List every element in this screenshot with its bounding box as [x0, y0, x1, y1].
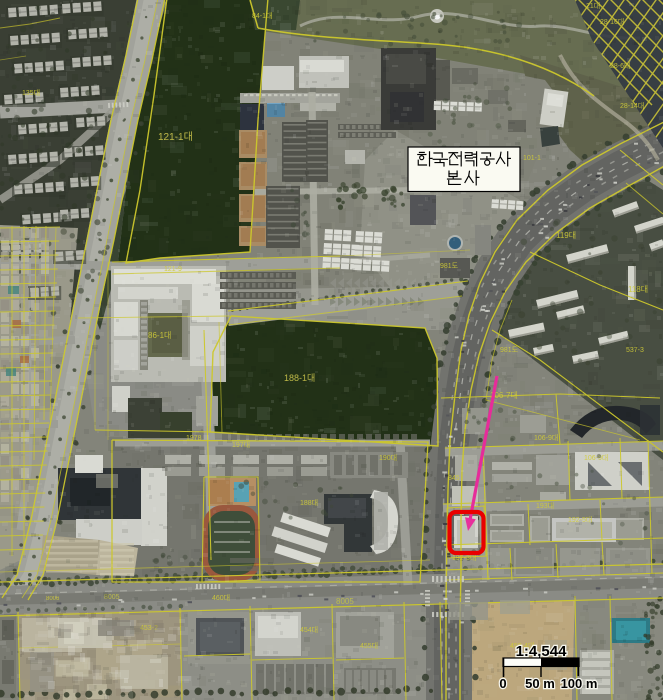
svg-text:50 m: 50 m — [525, 676, 555, 691]
svg-text:100 m: 100 m — [561, 676, 598, 691]
svg-text:0: 0 — [499, 676, 506, 691]
